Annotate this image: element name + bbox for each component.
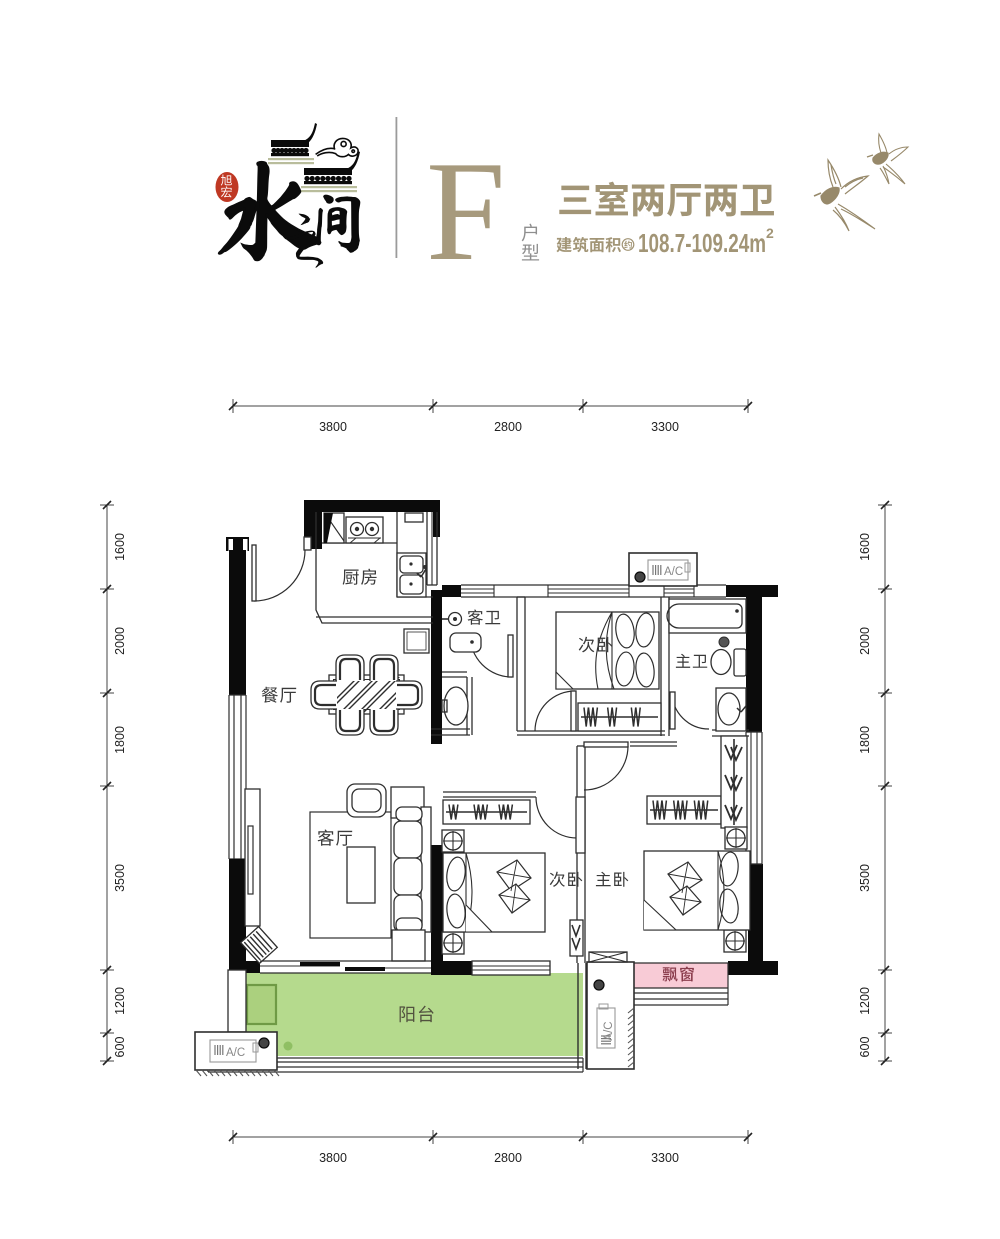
svg-text:600: 600 <box>113 1037 127 1058</box>
svg-text:2000: 2000 <box>113 627 127 655</box>
svg-text:1600: 1600 <box>113 533 127 561</box>
svg-text:A/C: A/C <box>226 1047 245 1059</box>
svg-text:2800: 2800 <box>494 420 522 434</box>
svg-text:3300: 3300 <box>651 420 679 434</box>
svg-text:A/C: A/C <box>664 566 683 578</box>
svg-text:1800: 1800 <box>858 726 872 754</box>
svg-text:2800: 2800 <box>494 1151 522 1165</box>
svg-text:1800: 1800 <box>113 726 127 754</box>
svg-text:1600: 1600 <box>858 533 872 561</box>
svg-text:A/C: A/C <box>603 1021 615 1040</box>
svg-text:2: 2 <box>766 225 774 241</box>
svg-text:108.7-109.24m: 108.7-109.24m <box>638 228 766 258</box>
svg-text:3300: 3300 <box>651 1151 679 1165</box>
svg-text:F: F <box>426 132 506 290</box>
svg-text:1200: 1200 <box>858 987 872 1015</box>
svg-text:3800: 3800 <box>319 1151 347 1165</box>
svg-text:2000: 2000 <box>858 627 872 655</box>
svg-text:3800: 3800 <box>319 420 347 434</box>
svg-text:3500: 3500 <box>858 864 872 892</box>
svg-text:1200: 1200 <box>113 987 127 1015</box>
svg-text:600: 600 <box>858 1037 872 1058</box>
svg-text:3500: 3500 <box>113 864 127 892</box>
